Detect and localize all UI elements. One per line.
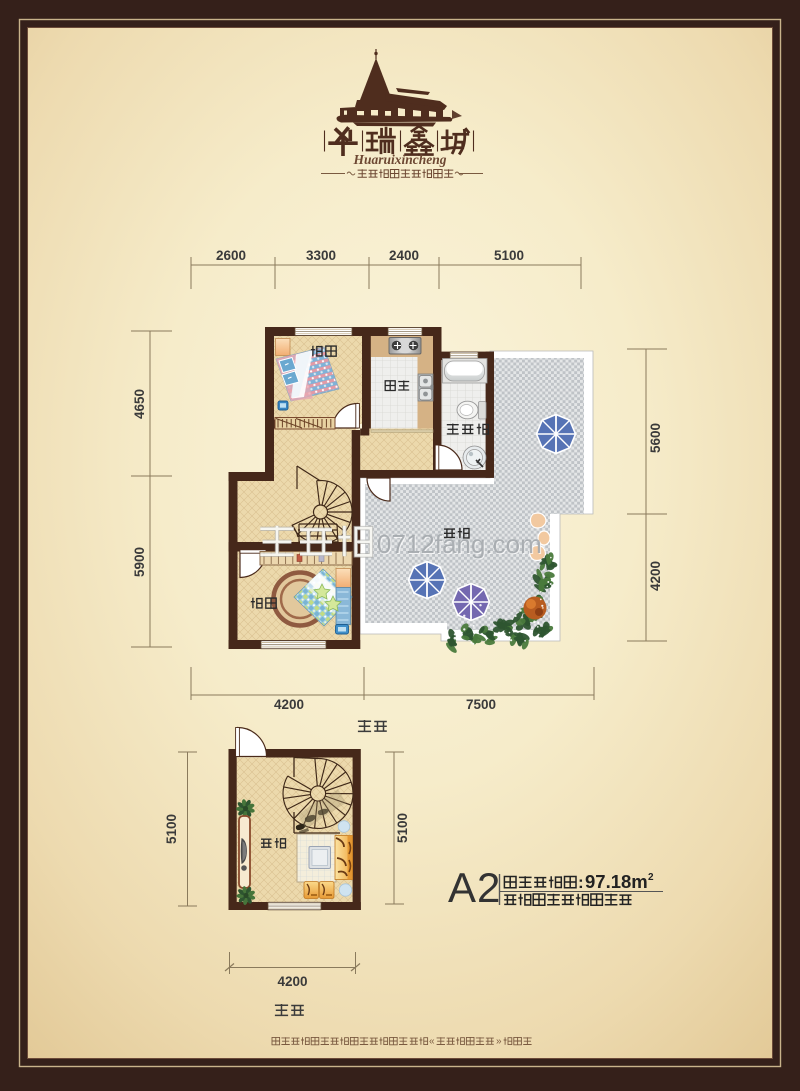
svg-text:7500: 7500 [466,697,496,712]
svg-text:5100: 5100 [494,248,524,263]
svg-text:5100: 5100 [395,813,410,843]
svg-text:Huaruixincheng: Huaruixincheng [352,152,446,167]
svg-text:97.18m: 97.18m [585,871,648,892]
svg-text:«: « [429,1036,435,1047]
svg-text:2400: 2400 [389,248,419,263]
svg-text:2: 2 [648,872,654,883]
svg-text:4200: 4200 [274,697,304,712]
svg-text::: : [578,873,584,892]
svg-text:2600: 2600 [216,248,246,263]
svg-text:3300: 3300 [306,248,336,263]
svg-text:5100: 5100 [164,814,179,844]
svg-text:A2: A2 [448,864,501,911]
svg-text:4200: 4200 [648,561,663,591]
svg-text:4200: 4200 [277,974,307,989]
svg-text:4650: 4650 [132,389,147,419]
svg-text:5900: 5900 [132,547,147,577]
svg-text:»: » [496,1036,502,1047]
svg-text:5600: 5600 [648,423,663,453]
